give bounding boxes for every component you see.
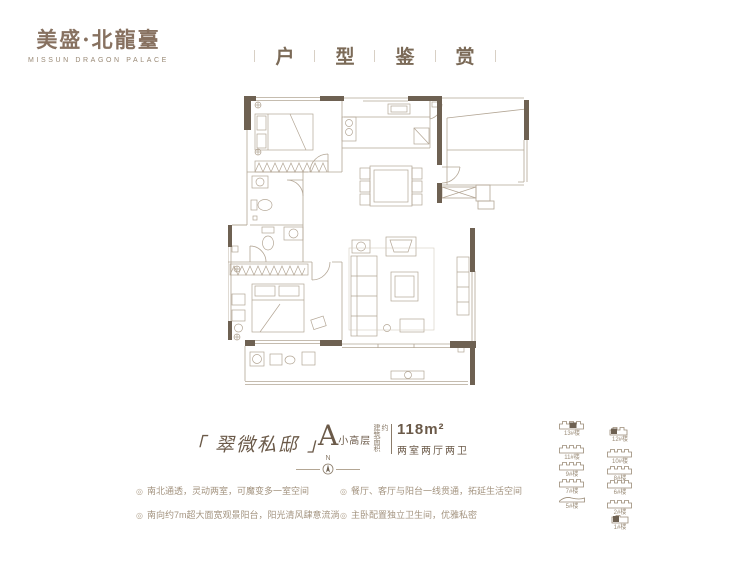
feature-text: 南北通透，灵动两室，可魔变多一室空间 bbox=[147, 486, 309, 497]
feature-text: 主卧配置独立卫生间，优雅私密 bbox=[351, 510, 477, 521]
unit-name: 「 翠微私邸 」 bbox=[186, 430, 328, 457]
feature-item: ◎ 南向约7m超大面宽观景阳台，阳光清风肆意流淌 bbox=[136, 510, 344, 521]
building-label: 6#楼 bbox=[604, 490, 636, 497]
unit-type-letter: A bbox=[318, 422, 338, 450]
feature-item: ◎ 主卧配置独立卫生间，优雅私密 bbox=[340, 510, 552, 521]
unit-layout: 两室两厅两卫 bbox=[397, 442, 469, 457]
siteplan-building: 5#楼 bbox=[556, 493, 588, 511]
bullet-icon: ◎ bbox=[136, 510, 143, 521]
area-value: 118m² bbox=[397, 421, 469, 438]
title-separator: 丨 bbox=[491, 46, 499, 65]
siteplan: 13#楼 11#楼 9#楼 7#楼 5#楼 12#楼 10#楼 8#楼 6#楼 … bbox=[556, 416, 656, 534]
feature-text: 餐厅、客厅与阳台一线贯通，拓延生活空间 bbox=[351, 486, 522, 497]
feature-item: ◎ 餐厅、客厅与阳台一线贯通，拓延生活空间 bbox=[340, 486, 552, 497]
page-title: 丨 户 丨 型 丨 鉴 丨 赏 丨 bbox=[0, 42, 750, 69]
compass-north-label: N bbox=[292, 455, 364, 463]
bullet-icon: ◎ bbox=[136, 486, 143, 497]
bullet-icon: ◎ bbox=[340, 510, 347, 521]
compass-icon bbox=[322, 463, 334, 475]
siteplan-building: 12#楼 bbox=[604, 426, 636, 444]
unit-type-suffix: 小高层 bbox=[338, 432, 371, 450]
title-char-3: 鉴 bbox=[396, 42, 415, 69]
title-char-1: 户 bbox=[275, 42, 294, 69]
building-label: 5#楼 bbox=[556, 504, 588, 511]
floorplan-svg bbox=[228, 88, 546, 393]
siteplan-building: 11#楼 bbox=[556, 444, 588, 462]
building-label: 13#楼 bbox=[556, 431, 588, 438]
building-label: 1#楼 bbox=[604, 525, 636, 532]
building-label: 12#楼 bbox=[604, 437, 636, 444]
title-char-4: 赏 bbox=[456, 42, 475, 69]
bullet-icon: ◎ bbox=[340, 486, 347, 497]
floorplan bbox=[228, 88, 546, 398]
feature-text: 南向约7m超大面宽观景阳台，阳光清风肆意流淌 bbox=[147, 510, 340, 521]
unit-type: A 小高层 bbox=[318, 422, 371, 450]
title-separator: 丨 bbox=[431, 46, 439, 65]
feature-item: ◎ 南北通透，灵动两室，可魔变多一室空间 bbox=[136, 486, 344, 497]
feature-list-right: ◎ 餐厅、客厅与阳台一线贯通，拓延生活空间 ◎ 主卧配置独立卫生间，优雅私密 bbox=[340, 486, 552, 534]
compass-line-left bbox=[296, 469, 320, 470]
area-vertical-label: 建筑面积约 bbox=[372, 424, 388, 454]
area-block: 建筑面积约 118m² 两室两厅两卫 bbox=[372, 420, 469, 458]
title-separator: 丨 bbox=[371, 46, 379, 65]
feature-list-left: ◎ 南北通透，灵动两室，可魔变多一室空间 ◎ 南向约7m超大面宽观景阳台，阳光清… bbox=[136, 486, 344, 534]
title-separator: 丨 bbox=[311, 46, 319, 65]
area-divider bbox=[391, 424, 392, 454]
compass-line-right bbox=[336, 469, 360, 470]
siteplan-building: 6#楼 bbox=[604, 479, 636, 497]
title-char-2: 型 bbox=[335, 42, 354, 69]
compass: N bbox=[292, 455, 364, 475]
siteplan-building: 13#楼 bbox=[556, 420, 588, 438]
siteplan-building: 9#楼 bbox=[556, 461, 588, 479]
siteplan-building: 1#楼 bbox=[604, 514, 636, 532]
siteplan-building: 10#楼 bbox=[604, 448, 636, 466]
title-separator: 丨 bbox=[251, 46, 259, 65]
